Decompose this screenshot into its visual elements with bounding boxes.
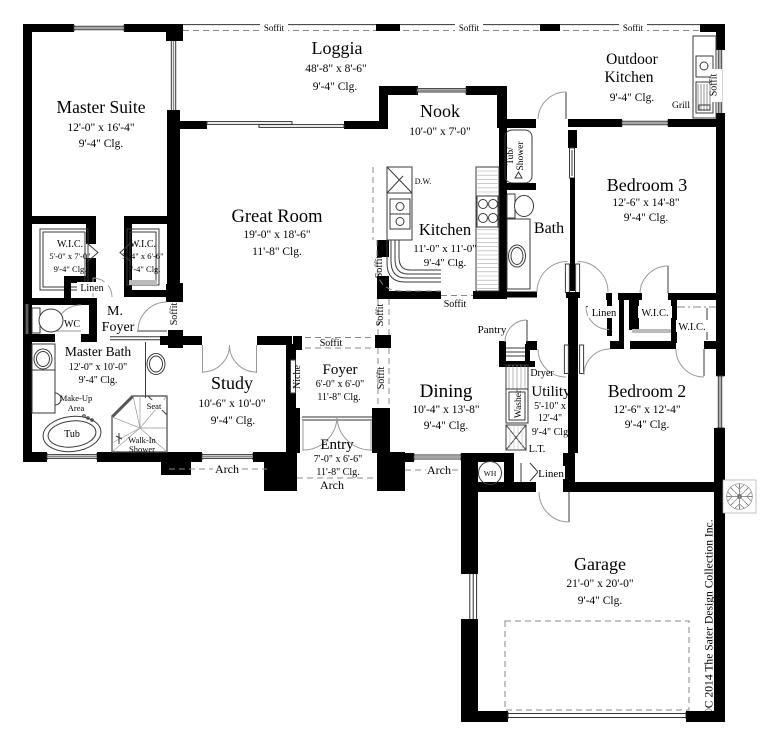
- svg-text:Soffit: Soffit: [709, 73, 720, 96]
- svg-text:9'-4" Clg.: 9'-4" Clg.: [625, 419, 670, 431]
- svg-text:Arch: Arch: [215, 462, 239, 476]
- svg-text:11'-8" Clg.: 11'-8" Clg.: [316, 467, 359, 478]
- svg-text:WH: WH: [484, 469, 497, 478]
- svg-text:W.I.C.: W.I.C.: [641, 308, 668, 319]
- svg-text:9'-4" Clg.: 9'-4" Clg.: [79, 375, 118, 386]
- svg-text:Kitchen: Kitchen: [419, 220, 471, 239]
- svg-text:Grill: Grill: [672, 101, 690, 111]
- svg-text:10'-6" x 10'-0": 10'-6" x 10'-0": [198, 398, 265, 410]
- svg-text:Soffit: Soffit: [374, 255, 385, 278]
- svg-text:Dining: Dining: [420, 381, 473, 402]
- svg-text:Soffit: Soffit: [169, 302, 180, 325]
- svg-text:12'-4": 12'-4": [538, 413, 562, 424]
- svg-text:Loggia: Loggia: [312, 38, 363, 58]
- svg-text:12'-6" x 12'-4": 12'-6" x 12'-4": [613, 404, 680, 416]
- svg-text:Study: Study: [211, 373, 253, 393]
- svg-text:Shower: Shower: [516, 141, 526, 171]
- svg-text:11'-8" Clg.: 11'-8" Clg.: [252, 246, 302, 258]
- svg-text:9'-4" Clg.: 9'-4" Clg.: [211, 415, 256, 427]
- svg-text:Tub: Tub: [64, 429, 80, 440]
- svg-text:Area: Area: [68, 403, 85, 413]
- svg-text:9'-4" Clg.: 9'-4" Clg.: [313, 81, 358, 93]
- svg-text:Washer: Washer: [514, 389, 524, 418]
- svg-text:Seat: Seat: [147, 401, 162, 411]
- svg-text:9'-4" Clg.: 9'-4" Clg.: [54, 264, 87, 274]
- svg-text:12'-0" x 10'-0": 12'-0" x 10'-0": [69, 362, 127, 373]
- svg-text:W.I.C.: W.I.C.: [57, 239, 83, 250]
- svg-text:Master Suite: Master Suite: [57, 97, 146, 117]
- svg-text:Soffit: Soffit: [623, 23, 644, 33]
- svg-text:9'-4" Clg.: 9'-4" Clg.: [578, 595, 623, 607]
- svg-text:19'-0" x 18'-6": 19'-0" x 18'-6": [243, 229, 310, 241]
- svg-text:9'-4" Clg: 9'-4" Clg: [532, 427, 568, 438]
- svg-text:Arch: Arch: [427, 463, 451, 477]
- svg-text:11'-8" Clg.: 11'-8" Clg.: [317, 392, 360, 403]
- svg-text:Soffit: Soffit: [375, 303, 386, 326]
- svg-text:L.T.: L.T.: [529, 444, 545, 455]
- svg-text:Garage: Garage: [574, 554, 626, 574]
- svg-text:48'-8" x 8'-6": 48'-8" x 8'-6": [305, 63, 366, 75]
- svg-text:Make-Up: Make-Up: [60, 393, 93, 403]
- svg-text:Bedroom 3: Bedroom 3: [607, 175, 688, 195]
- svg-text:10'-0" x 7'-0": 10'-0" x 7'-0": [409, 126, 470, 138]
- svg-text:Shower: Shower: [129, 444, 155, 454]
- svg-text:9'-4" Clg.: 9'-4" Clg.: [424, 420, 469, 432]
- svg-text:10'-4" x 13'-8": 10'-4" x 13'-8": [412, 404, 479, 416]
- svg-text:Bath: Bath: [534, 220, 564, 237]
- svg-text:Linen: Linen: [538, 468, 564, 480]
- svg-text:Dryer: Dryer: [530, 368, 554, 379]
- svg-text:Soffit: Soffit: [264, 23, 285, 33]
- svg-text:11'-0" x 11'-0": 11'-0" x 11'-0": [413, 243, 476, 255]
- svg-text:Soffit: Soffit: [459, 23, 480, 33]
- svg-text:Nook: Nook: [420, 101, 460, 121]
- svg-text:9'-4" Clg.: 9'-4" Clg.: [424, 257, 467, 269]
- svg-text:5'-10" x: 5'-10" x: [534, 401, 566, 412]
- svg-text:Great Room: Great Room: [232, 207, 324, 227]
- svg-text:Entry: Entry: [320, 437, 354, 453]
- svg-text:9'-4" Clg.: 9'-4" Clg.: [624, 212, 669, 224]
- svg-text:Linen: Linen: [80, 283, 103, 294]
- svg-text:Kitchen: Kitchen: [604, 69, 653, 86]
- svg-text:Soffit: Soffit: [320, 338, 343, 349]
- svg-text:Soffit: Soffit: [376, 366, 387, 389]
- svg-text:12'-0" x 16'-4": 12'-0" x 16'-4": [67, 122, 134, 134]
- svg-text:Pantry: Pantry: [478, 324, 507, 336]
- svg-text:W.I.C.: W.I.C.: [678, 322, 705, 333]
- svg-text:21'-0" x 20'-0": 21'-0" x 20'-0": [566, 578, 633, 590]
- svg-text:Arch: Arch: [320, 478, 344, 492]
- svg-text:Linen: Linen: [592, 308, 617, 319]
- svg-text:Niche: Niche: [292, 365, 303, 389]
- svg-text:9'-4" Clg.: 9'-4" Clg.: [128, 264, 161, 274]
- svg-text:Foyer: Foyer: [323, 362, 358, 378]
- svg-text:3'-4" x 6'-6": 3'-4" x 6'-6": [122, 251, 163, 261]
- svg-text:W.I.C.: W.I.C.: [130, 239, 156, 250]
- svg-text:Soffit: Soffit: [444, 299, 467, 310]
- svg-text:12'-6" x 14'-8": 12'-6" x 14'-8": [612, 197, 679, 209]
- svg-text:Utility: Utility: [531, 384, 571, 400]
- svg-text:5'-0" x 7'-0": 5'-0" x 7'-0": [49, 251, 90, 261]
- svg-text:6'-0" x 6'-0": 6'-0" x 6'-0": [316, 379, 364, 390]
- svg-text:9'-4" Clg.: 9'-4" Clg.: [79, 138, 124, 150]
- svg-text:WC: WC: [64, 319, 80, 330]
- svg-text:9'-4" Clg.: 9'-4" Clg.: [610, 92, 655, 104]
- svg-text:©C 2014 The Sater Design Colle: ©C 2014 The Sater Design Collection Inc.: [703, 519, 716, 717]
- svg-text:D.W.: D.W.: [415, 177, 432, 186]
- svg-text:Tub/: Tub/: [506, 147, 516, 165]
- svg-text:7'-0" x 6'-6": 7'-0" x 6'-6": [314, 454, 362, 465]
- svg-text:Outdoor: Outdoor: [606, 51, 659, 68]
- svg-text:M.: M.: [107, 304, 123, 319]
- svg-text:Master Bath: Master Bath: [65, 344, 132, 359]
- svg-text:Bedroom 2: Bedroom 2: [608, 381, 686, 401]
- svg-text:Foyer: Foyer: [102, 320, 135, 335]
